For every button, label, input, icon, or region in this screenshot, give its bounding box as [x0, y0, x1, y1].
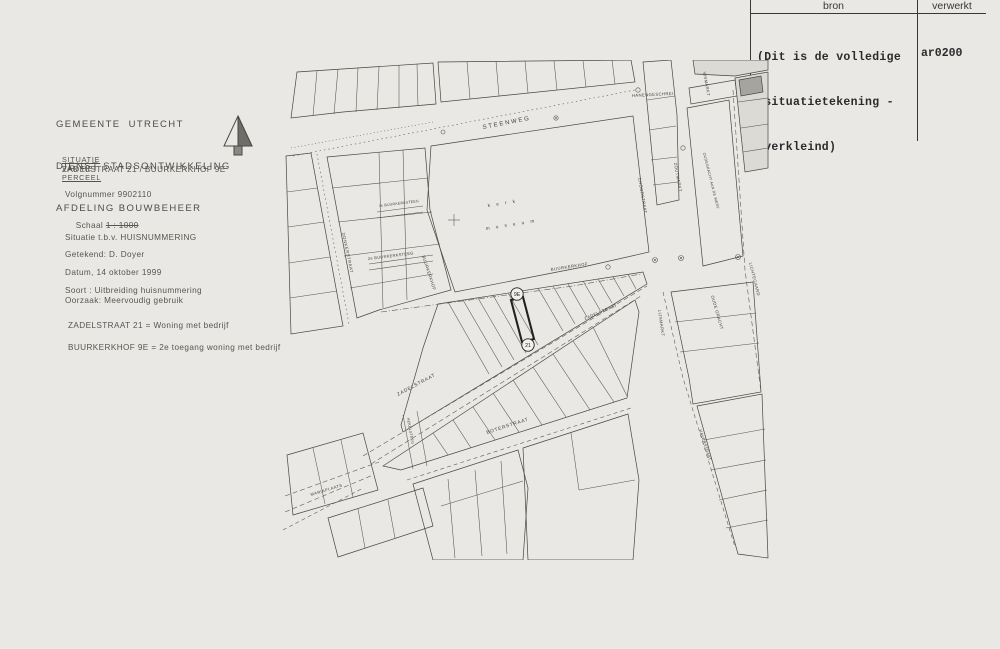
- map-label-oude-gracht: OUDE GRACHT: [710, 295, 725, 330]
- map-church-cross: [448, 214, 460, 226]
- map-label-buurkerksteeg-3e: 3e BUURKERKSTEEG: [379, 199, 420, 208]
- map-parcel-dividers-nw: [313, 64, 418, 116]
- map-label-haverstraat: HAVERSTRAAT: [698, 429, 713, 461]
- stamp-hline: [750, 13, 986, 14]
- map-label-hekelsteeg: HEKELSTEEG: [406, 417, 415, 444]
- map-subject-parcel: 9E 21: [511, 288, 534, 351]
- scanned-situation-drawing: { "stamp": { "col1": "bron", "col2": "ve…: [0, 0, 1000, 649]
- agency-line1: GEMEENTE UTRECHT: [56, 118, 231, 132]
- stamp-note-line1: (Dit is de volledige: [757, 50, 901, 65]
- stamp-col-verwerkt: verwerkt: [918, 0, 986, 13]
- map-street-dashes: [283, 90, 761, 547]
- situatie-tbv: Situatie t.b.v. HUISNUMMERING: [65, 233, 197, 242]
- soort: Soort : Uitbreiding huisnummering: [65, 286, 202, 295]
- map-label-choorstraat: CHOORSTRAAT: [637, 177, 648, 214]
- map-label-museum: m u s e u m: [485, 218, 537, 231]
- map-label-zadelstraat-west: ZADELSTRAAT: [396, 372, 437, 397]
- datum: Datum, 14 oktober 1999: [65, 268, 162, 277]
- volgnummer: Volgnummer 9902110: [65, 190, 152, 199]
- uitleg-buurkerkhof: BUURKERKHOF 9E = 2e toegang woning met b…: [68, 343, 281, 352]
- map-street-labels: STEENWEGHANENGESCHREIVISMARKTCHOORSTRAAT…: [310, 71, 761, 497]
- schaal-value-struck: 1 : 1000: [106, 221, 139, 230]
- map-label-buurkerkhof-noord: BUURKERKHOF: [550, 261, 588, 272]
- map-label-oudegracht-werf: OUDEGRACHT AAN DE WERF: [702, 152, 720, 210]
- map-label-boterstraat: BOTERSTRAAT: [486, 417, 530, 436]
- parcel-badge-9e: 9E: [514, 292, 521, 298]
- north-arrow-icon: [222, 114, 254, 158]
- map-label-zadelstraat-oost: ZADELSTRAAT: [583, 303, 617, 321]
- stamp-note: (Dit is de volledige situatietekening - …: [757, 20, 901, 185]
- stamp-col-bron: bron: [751, 0, 916, 13]
- stamp-note-line2: situatietekening -: [757, 95, 901, 110]
- parcel-address: ZADELSTRAAT 21 / BUURKERKHOF 9E: [62, 165, 226, 174]
- map-label-buurkerkhof-west: BUURKERKHOF: [421, 255, 437, 291]
- map-tree-symbols: [441, 88, 741, 269]
- stamp-note-line3: verkleind): [757, 140, 901, 155]
- map-label-zoutmarkt: ZOUTMARKT: [673, 162, 683, 192]
- oorzaak: Oorzaak: Meervoudig gebruik: [65, 296, 183, 305]
- stamp-vline-mid: [917, 0, 918, 141]
- schaal-label: Schaal: [76, 221, 106, 230]
- uitleg-zadelstraat: ZADELSTRAAT 21 = Woning met bedrijf: [68, 321, 229, 330]
- situatie-word1: SITUATIE: [62, 155, 100, 164]
- situation-map: 9E 21 STEENWEGHANENGESCHREIVISMARKTCHOOR…: [283, 60, 773, 560]
- city-map-drawing: 9E 21 STEENWEGHANENGESCHREIVISMARKTCHOOR…: [283, 60, 773, 560]
- getekend: Getekend: D. Doyer: [65, 250, 145, 259]
- map-label-steenweg: STEENWEG: [482, 116, 531, 131]
- map-label-kerk: k e r k: [487, 198, 517, 208]
- parcel-badge-21: 21: [525, 343, 531, 349]
- map-label-lijnmarkt: LIJNMARKT: [657, 309, 666, 336]
- stamp-code: ar0200: [921, 47, 962, 60]
- situatie-word3: PERCEEL: [62, 173, 101, 182]
- map-label-lichtegaard: LICHTEGAARD: [748, 262, 761, 296]
